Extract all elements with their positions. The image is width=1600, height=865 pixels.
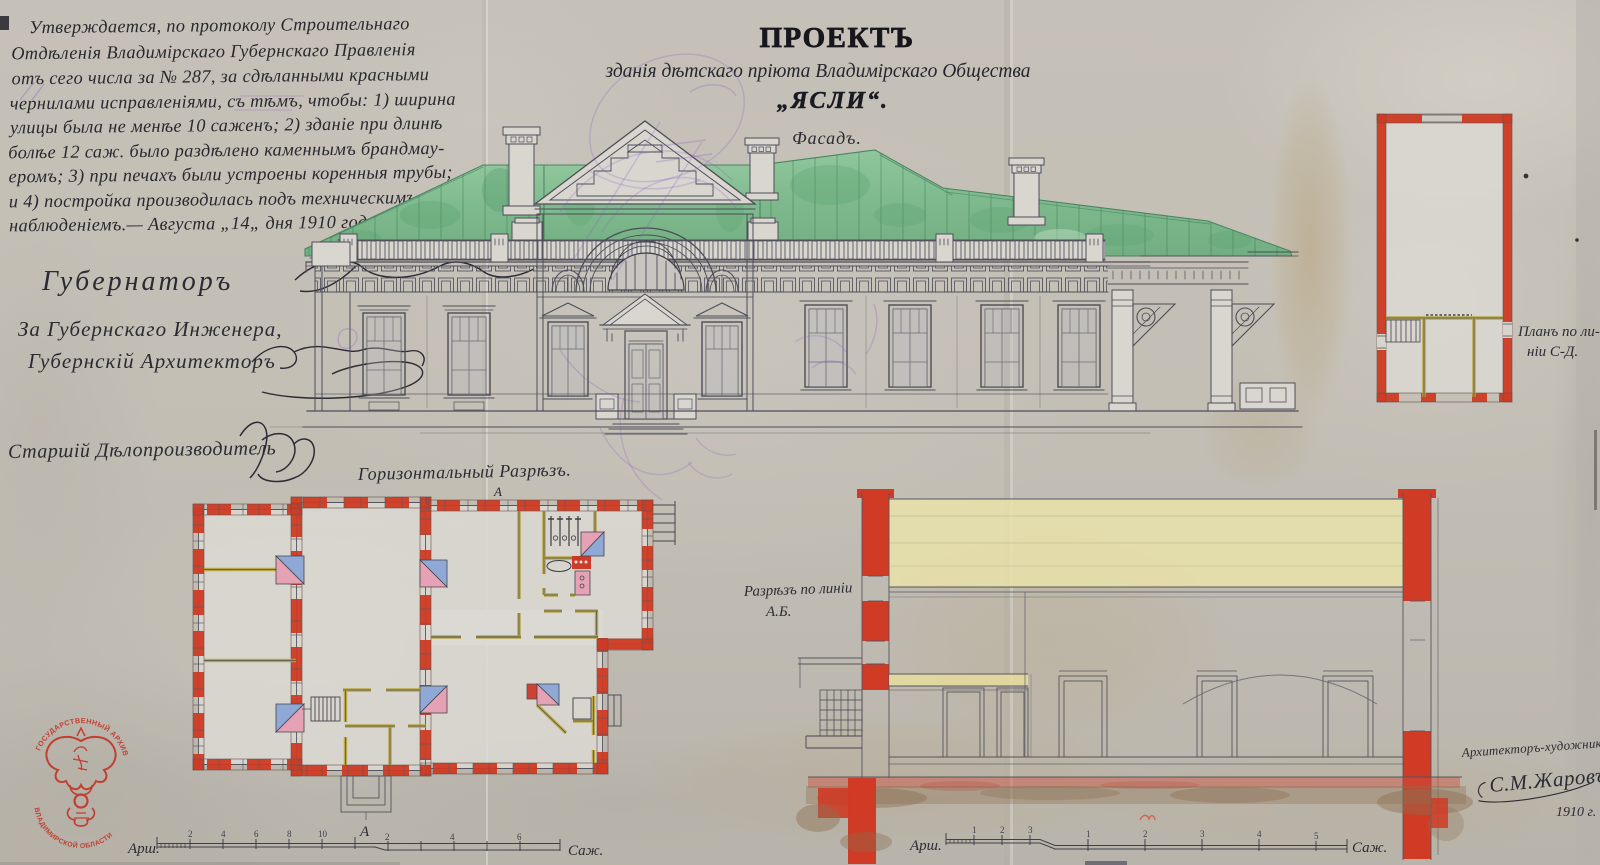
svg-text:Планъ по ли-: Планъ по ли-	[1517, 324, 1600, 340]
svg-text:„ЯСЛИ“.: „ЯСЛИ“.	[777, 88, 889, 114]
svg-text:2: 2	[188, 829, 193, 839]
svg-text:Губернскій Архитекторъ: Губернскій Архитекторъ	[27, 349, 276, 373]
svg-text:6: 6	[517, 832, 522, 842]
svg-text:А: А	[359, 824, 370, 840]
svg-text:ПРОЕКТЪ: ПРОЕКТЪ	[759, 22, 914, 54]
svg-text:1: 1	[972, 825, 977, 835]
svg-text:2: 2	[1143, 829, 1148, 839]
svg-text:Губернаторъ: Губернаторъ	[41, 266, 233, 297]
svg-text:4: 4	[450, 832, 455, 842]
svg-text:2: 2	[1000, 825, 1005, 835]
svg-text:ніи С-Д.: ніи С-Д.	[1527, 344, 1578, 360]
svg-text:зданія дѣтскаго пріюта Владимі: зданія дѣтскаго пріюта Владимірскаго Общ…	[604, 61, 1030, 82]
svg-text:3: 3	[1028, 825, 1033, 835]
svg-text:Арш.: Арш.	[909, 838, 942, 854]
svg-text:4: 4	[221, 829, 226, 839]
svg-text:10: 10	[318, 829, 328, 839]
svg-text:Фасадъ.: Фасадъ.	[792, 128, 862, 148]
svg-text:Саж.: Саж.	[1352, 840, 1387, 856]
svg-text:8: 8	[287, 829, 292, 839]
svg-text:А: А	[493, 484, 502, 499]
svg-text:1910 г.: 1910 г.	[1556, 805, 1596, 820]
svg-text:1: 1	[1086, 829, 1091, 839]
svg-text:Саж.: Саж.	[568, 843, 603, 859]
svg-text:За Губернскаго Инженера,: За Губернскаго Инженера,	[18, 317, 283, 341]
svg-text:Утверждается, по протоколу Стр: Утверждается, по протоколу Строительнаго	[29, 13, 410, 37]
svg-text:5: 5	[1314, 831, 1319, 841]
svg-text:2: 2	[385, 832, 390, 842]
svg-text:4: 4	[1257, 829, 1262, 839]
svg-text:А.Б.: А.Б.	[765, 604, 792, 620]
svg-text:3: 3	[1200, 829, 1205, 839]
svg-text:Арш.: Арш.	[127, 841, 160, 857]
svg-text:Отдѣленія Владимірскаго Губерн: Отдѣленія Владимірскаго Губернскаго Прав…	[11, 39, 416, 63]
svg-text:Старшій Дѣлопроизводитель: Старшій Дѣлопроизводитель	[8, 437, 276, 463]
svg-text:6: 6	[254, 829, 259, 839]
